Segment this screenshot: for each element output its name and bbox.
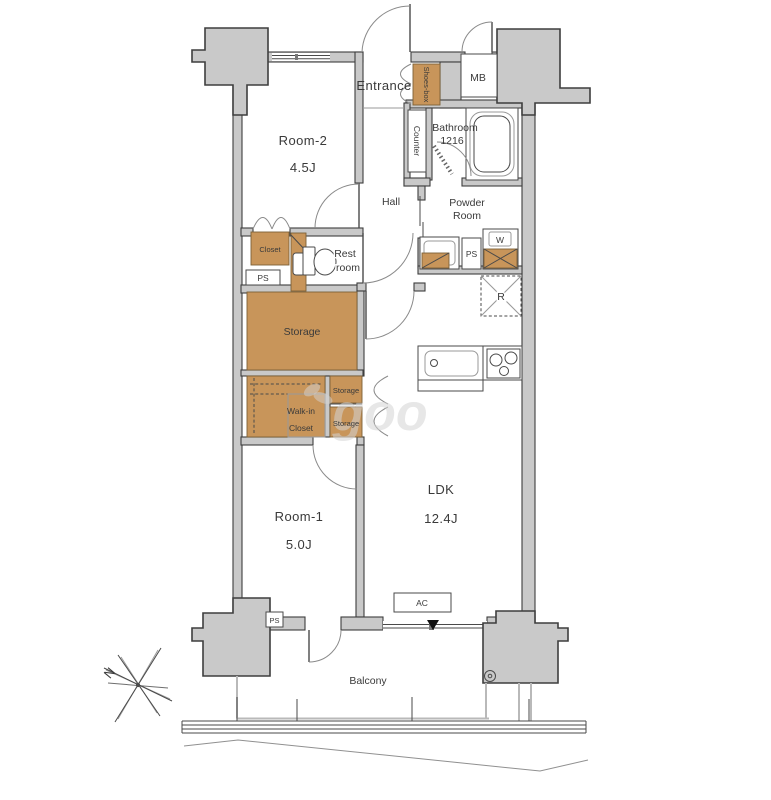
pillar-top-right [497,29,590,115]
bathroom-label-1: Bathroom [432,122,478,134]
rest-room-label-1: Rest [334,248,356,260]
mb-door-arc [462,22,492,52]
balcony-railing [182,697,586,733]
closet-bifold-doors [253,218,290,230]
room1-size-label: 5.0J [286,537,312,552]
bathroom-label-2: 1216 [440,135,464,147]
restroom-door-arc [363,233,413,283]
entrance-label: Entrance [356,78,411,93]
window-room2-top [272,53,330,61]
ps-closet-label: PS [257,273,269,283]
room2-door-arc [315,184,359,228]
walk-in-closet-label-1: Walk-in [287,406,315,416]
pillar-bottom-right [483,611,568,683]
bathroom-folding-door [434,146,452,174]
washer-label: W [496,235,504,245]
ldk-size-label: 12.4J [424,511,458,526]
kitchen [418,346,522,391]
ps-powder-label: PS [466,249,478,259]
storage-main-label: Storage [284,326,321,338]
storage-top-label: Storage [333,386,359,395]
counter-label: Counter [412,126,422,156]
room1-name-label: Room-1 [275,509,324,524]
pillar-top-left [192,28,268,115]
mb-label: MB [470,72,486,84]
ldk-name-label: LDK [428,482,455,497]
balcony-door-arc [309,630,341,662]
hall-label: Hall [382,196,400,208]
powder-room-label-2: Room [453,210,481,222]
ground-line [184,740,588,771]
north-label: N [101,664,119,681]
compass [104,648,172,722]
ac-label: AC [416,598,428,608]
room2-size-label: 4.5J [290,160,316,175]
balcony-label: Balcony [349,675,387,687]
ldk-door-arc [366,291,414,339]
rest-room-label-2: room [336,262,360,274]
ps-balcony-label: PS [269,616,279,625]
meter-box [461,22,497,97]
shoes-box-label: Shoes-box [422,67,431,103]
refrigerator-label: R [497,291,505,303]
floor-plan-page: goo Room-2 4.5J Entrance MB Shoes-box Co… [0,0,771,800]
storage-bottom-label: Storage [333,419,359,428]
entrance-door-arc [362,6,410,52]
room1-door-arc [313,445,357,489]
toilet [303,247,336,275]
pillar-bottom-left [192,598,270,676]
room2-name-label: Room-2 [279,133,328,148]
floor-plan-svg: goo Room-2 4.5J Entrance MB Shoes-box Co… [0,0,771,800]
walk-in-closet-label-2: Closet [289,423,314,433]
powder-room-label-1: Powder [449,197,485,209]
vanity-sink [420,237,459,269]
closet-label: Closet [259,245,281,254]
